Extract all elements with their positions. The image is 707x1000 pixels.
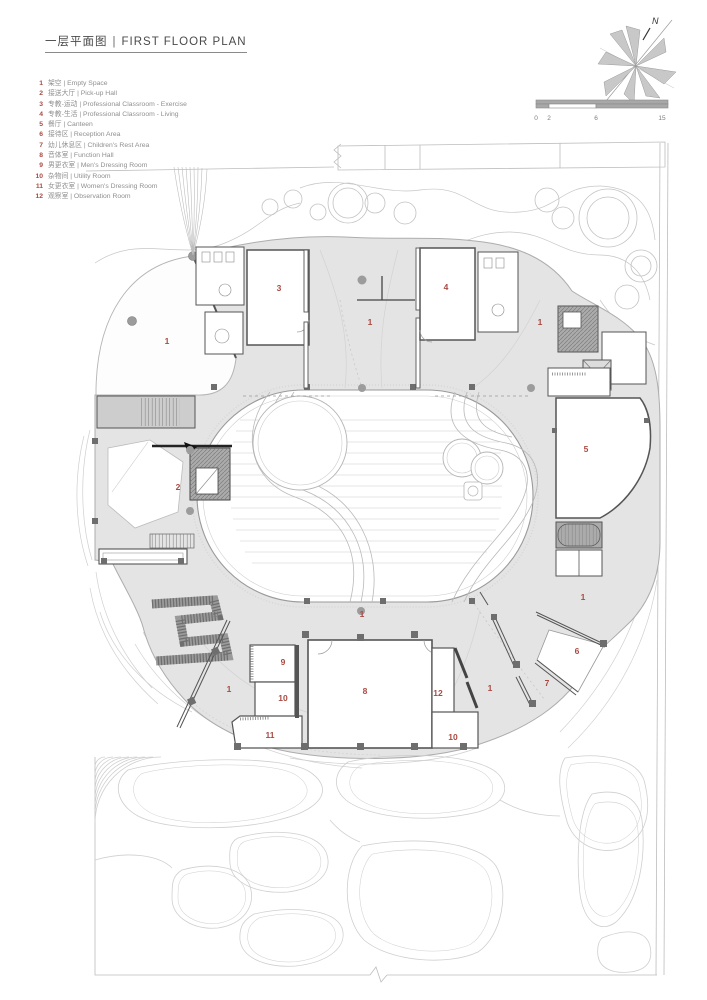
legend-item: 10杂物间 | Utility Room [33,172,187,182]
legend-item: 3专教-运动 | Professional Classroom - Exerci… [33,100,187,110]
legend-item-label: 观察室 | Observation Room [48,192,131,202]
legend-item-label: 接送大厅 | Pick-up Hall [48,89,117,99]
legend-item-label: 专教-生活 | Professional Classroom - Living [48,110,179,120]
legend-item-number: 7 [33,141,43,151]
legend-item-number: 10 [33,172,43,182]
north-label: N [652,16,659,26]
page-title: 一层平面图|FIRST FLOOR PLAN [45,33,247,53]
legend-item-label: 男更衣室 | Men's Dressing Room [48,161,147,171]
legend-item: 6接待区 | Reception Area [33,130,187,140]
scale-tick: 2 [547,115,551,122]
scale-tick: 15 [658,115,665,122]
title-zh: 一层平面图 [45,36,108,48]
landscape-terraces [95,755,651,972]
legend-item: 2接送大厅 | Pick-up Hall [33,89,187,99]
legend-item-number: 3 [33,100,43,110]
title-en: FIRST FLOOR PLAN [122,36,247,48]
legend-item-label: 幼儿休息区 | Children's Rest Area [48,141,149,151]
legend-item-label: 女更衣室 | Women's Dressing Room [48,182,157,192]
legend-item-number: 11 [33,182,43,192]
legend-item-label: 架空 | Empty Space [48,79,108,89]
legend-item-number: 1 [33,79,43,89]
courtyard-track [192,384,538,615]
legend-item-number: 9 [33,161,43,171]
legend-item-label: 接待区 | Reception Area [48,130,120,140]
legend-item-number: 12 [33,192,43,202]
scale-tick: 6 [594,115,598,122]
scale-tick: 0 [534,115,538,122]
legend-item-number: 4 [33,110,43,120]
compass-petals [598,26,676,104]
scale-bar-graphic [530,94,675,114]
legend-item-label: 餐厅 | Canteen [48,120,93,130]
legend-item-label: 专教-运动 | Professional Classroom - Exercis… [48,100,187,110]
legend-item: 7幼儿休息区 | Children's Rest Area [33,141,187,151]
legend-item: 11女更衣室 | Women's Dressing Room [33,182,187,192]
drawing-sheet: 13141251169781210111110 一层平面图|FIRST FLOO… [0,0,707,1000]
title-divider: | [113,36,117,48]
legend-item-number: 2 [33,89,43,99]
legend-item-label: 杂物间 | Utility Room [48,172,111,182]
legend-item-number: 8 [33,151,43,161]
legend-item: 5餐厅 | Canteen [33,120,187,130]
legend-item: 4专教-生活 | Professional Classroom - Living [33,110,187,120]
legend-item-number: 6 [33,130,43,140]
legend-item-label: 音体室 | Function Hall [48,151,114,161]
legend-item: 8音体室 | Function Hall [33,151,187,161]
legend-item: 1架空 | Empty Space [33,79,187,89]
legend-item: 9男更衣室 | Men's Dressing Room [33,161,187,171]
legend-item: 12观察室 | Observation Room [33,192,187,202]
function-hall-block [232,631,478,750]
scale-bar: 02615 [530,94,675,124]
legend-item-number: 5 [33,120,43,130]
room-legend: 1架空 | Empty Space2接送大厅 | Pick-up Hall3专教… [33,79,187,203]
